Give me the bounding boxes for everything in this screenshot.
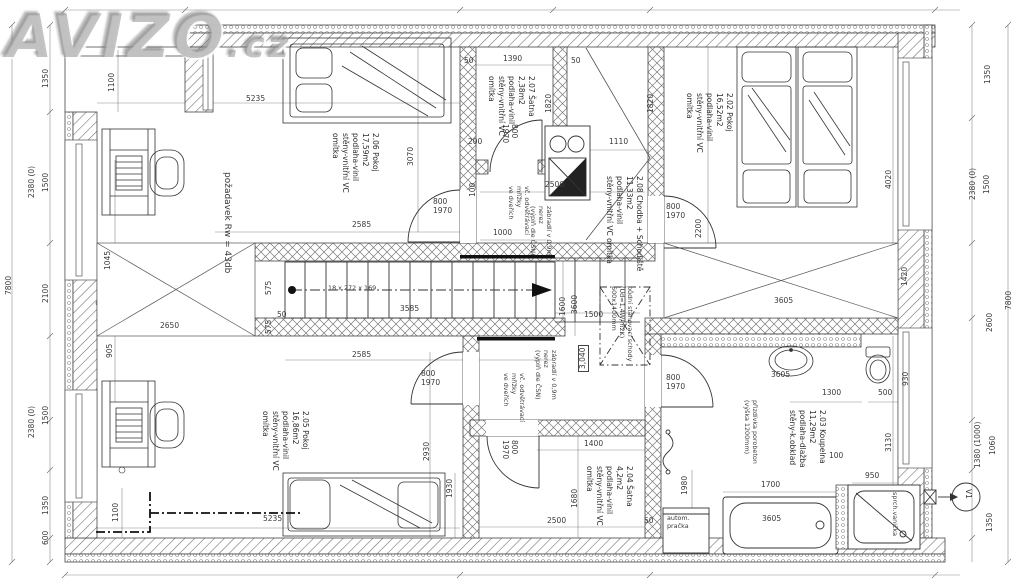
dimension-label: 1420 <box>901 267 910 286</box>
room-label: 2.02 Pokoj 16,52m2 podlaha-vinil stěny-v… <box>685 93 734 153</box>
dimension-label: 1820 <box>647 94 656 113</box>
annotation-note: přizdívka porobeton (výška 1200mm) <box>743 400 759 464</box>
dimension-label: 2380 (0) <box>969 168 978 200</box>
annotation-note: 18 x 272 x 169 <box>328 284 376 292</box>
dimension-label: 3605 <box>774 297 793 306</box>
dimension-label: 1110 <box>609 138 628 147</box>
dimension-label: 7800 <box>1005 291 1014 310</box>
dimension-label: 1500 <box>983 175 992 194</box>
dimension-label: 1350 <box>42 69 51 88</box>
room-label: 2.08 Chodba + Schodiště 11,33m2 podlaha-… <box>604 176 644 271</box>
dimension-label: 1350 <box>986 513 995 532</box>
annotation-note: sprch.vanička <box>891 492 899 536</box>
dimension-label: 50 <box>644 517 654 526</box>
dimension-label: 1060 <box>989 436 998 455</box>
dimension-label: 1500 <box>42 173 51 192</box>
room-label: 2.05 Pokoj 16,86m2 podlaha-vinil stěny-v… <box>261 411 310 471</box>
door-size-label: 800 1970 <box>500 440 518 459</box>
door-size-label: 800 1970 <box>666 203 685 221</box>
room-label: 2.04 Šatna 4,2m2 podlaha-vinil stěny-vni… <box>585 466 634 526</box>
dimension-label: 2500 <box>547 517 566 526</box>
dimension-label: 1380 (1000) <box>974 422 983 468</box>
dimension-label: 1350 <box>42 496 51 515</box>
dimension-label: 2380 (0) <box>28 406 37 438</box>
room-label: 2.06 Pokoj 17,59m2 podlaha-vinil stěny-v… <box>331 133 380 193</box>
annotation-note: půdní stahovací schody (Ud=1,4W/m2K) 600… <box>609 286 634 361</box>
dimension-label: 1980 <box>681 476 690 495</box>
room-label: 2.07 Šatna 2,38m2 podlaha-vinil stěny-vn… <box>487 76 536 136</box>
dimension-label: 100 <box>829 452 843 461</box>
dimension-label: 2200 <box>695 219 704 238</box>
dimension-label: 2100 <box>42 284 51 303</box>
dimension-label: 1350 <box>984 65 993 84</box>
dimension-label: 50 <box>464 57 474 66</box>
dimension-label: 1680 <box>571 489 580 508</box>
level-marker: 3,040 <box>578 345 589 372</box>
dimension-label: 950 <box>865 472 879 481</box>
dimension-label: 1100 <box>108 73 117 92</box>
dimension-label: 575 <box>265 320 274 334</box>
dimension-label: 7800 <box>5 276 14 295</box>
dimension-label: 1390 <box>503 55 522 64</box>
door-size-label: 800 1970 <box>421 370 440 388</box>
annotation-note: zábradlí v 0,9m nerez (výplň dle ČSN) <box>528 206 553 256</box>
floor-plan-canvas: 780013502380 (0)1500210015002380 (0)1350… <box>0 0 1024 584</box>
annotation-note: vč. odvětrávací mřížky ve dveřích <box>506 186 531 235</box>
dimension-label: 50 <box>277 311 287 320</box>
dimension-label: 600 <box>42 531 51 545</box>
dimension-label: 905 <box>106 344 115 358</box>
annotation-note: zábradlí v 0,9m nerez (výplň dle ČSN) <box>533 350 558 400</box>
dimension-label: 100 <box>469 183 478 197</box>
dimension-label: 3605 <box>771 371 790 380</box>
dimension-label: 5235 <box>246 95 265 104</box>
dimension-label: 2585 <box>352 351 371 360</box>
dimension-label: 500 <box>878 389 892 398</box>
label-layer: 780013502380 (0)1500210015002380 (0)1350… <box>0 0 1024 584</box>
dimension-label: 2380 (0) <box>28 166 37 198</box>
dimension-label: 1700 <box>761 481 780 490</box>
dimension-label: 1300 <box>822 389 841 398</box>
dimension-label: 575 <box>265 281 274 295</box>
dimension-label: 4020 <box>885 170 894 189</box>
dimension-label: 2650 <box>160 322 179 331</box>
dimension-label: 2930 <box>423 442 432 461</box>
dimension-label: 2500 <box>545 181 564 190</box>
dimension-label: 200 <box>468 138 482 147</box>
annotation-note: vč. odvětrávací mřížky ve dveřích <box>501 373 526 422</box>
dimension-label: 930 <box>902 372 911 386</box>
dimension-label: 1100 <box>112 503 121 522</box>
annotation-note: autom. pračka <box>667 514 690 530</box>
door-size-label: 800 1970 <box>666 374 685 392</box>
dimension-label: 2600 <box>986 313 995 332</box>
dimension-label: 1045 <box>104 251 113 270</box>
dimension-label: 3600 <box>571 295 580 314</box>
dimension-label: 1400 <box>584 440 603 449</box>
door-size-label: 800 1970 <box>433 198 452 216</box>
dimension-label: 3070 <box>407 147 416 166</box>
room-label: 2.03 Koupelna 11,29m2 podlaha-dlažba stě… <box>787 410 827 468</box>
dimension-label: 50 <box>571 57 581 66</box>
dimension-label: 1600 <box>559 297 568 316</box>
dimension-label: 1500 <box>584 311 603 320</box>
dimension-label: 3585 <box>400 305 419 314</box>
dimension-label: 1820 <box>545 94 554 113</box>
dimension-label: 1930 <box>446 479 455 498</box>
dimension-label: 1500 <box>42 406 51 425</box>
dimension-label: 3605 <box>762 515 781 524</box>
annotation-note: požadavek Rw = 43db <box>220 172 232 273</box>
dimension-label: 3130 <box>885 433 894 452</box>
dimension-label: 5235 <box>263 515 282 524</box>
vent-marker-label: V1 <box>963 489 972 499</box>
dimension-label: 2585 <box>352 221 371 230</box>
